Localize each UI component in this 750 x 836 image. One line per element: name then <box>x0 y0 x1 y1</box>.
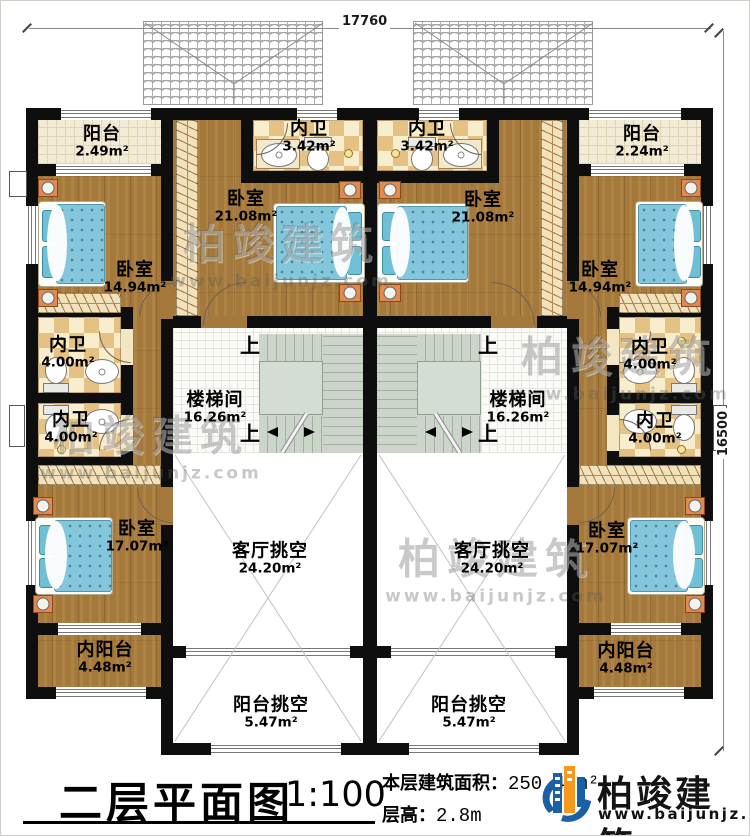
bed <box>627 517 705 595</box>
room-label-balcony-tl: 阳台2.49m² <box>75 125 128 160</box>
room-label-bath-right-2: 内卫4.00m² <box>628 412 681 447</box>
wall-inner-balcony-right-cap <box>681 623 713 635</box>
wall-inner-balcony-right-cap <box>579 623 611 635</box>
room-label-bath-tr: 内卫3.42m² <box>400 120 453 155</box>
window <box>589 108 681 120</box>
stairs-up-label: 上 <box>240 418 260 447</box>
stairs-up-label: 上 <box>478 418 498 447</box>
bed <box>38 201 106 287</box>
room-label-bedroom-left-lower: 卧室17.07m² <box>106 520 169 555</box>
wall-inner-balcony-left-cap <box>141 623 173 635</box>
stairs-left-arrow <box>267 427 278 437</box>
dimension-top-value: 17760 <box>339 14 390 29</box>
stairs-up-label: 上 <box>240 330 260 359</box>
dimension-tick <box>714 746 724 756</box>
wall-inner-balcony-left-cap <box>26 623 58 635</box>
door-opening <box>607 415 619 451</box>
stairs-right-arrow <box>462 427 473 437</box>
room-label-stair-left: 楼梯间16.26m² <box>184 391 247 426</box>
room-label-bedroom-left-upper: 卧室14.94m² <box>104 261 167 296</box>
room-label-bedroom-right-upper: 卧室14.94m² <box>569 261 632 296</box>
stairs-left-arrow <box>304 427 315 437</box>
wardrobe <box>579 465 701 485</box>
dimension-right-value: 16500 <box>716 408 731 459</box>
wardrobe <box>38 465 161 485</box>
wall-interior-left-a <box>161 108 173 755</box>
nightstand <box>685 595 705 613</box>
wall-bath-divider-right <box>607 393 713 403</box>
room-label-balcony-void-left: 阳台挑空5.47m² <box>233 696 309 731</box>
nightstand <box>33 595 53 613</box>
roof-hatch-left <box>143 21 323 105</box>
nightstand <box>339 284 361 302</box>
company-name: 柏竣建筑 <box>597 765 749 836</box>
wardrobe <box>176 120 198 316</box>
wall-niche <box>9 405 25 447</box>
room-label-bedroom-right-lower: 卧室17.07m² <box>576 522 639 557</box>
wardrobe <box>541 120 563 316</box>
roof-hatch-right <box>413 21 593 105</box>
room-label-balcony-tr: 阳台2.24m² <box>615 125 668 160</box>
bed <box>273 203 365 283</box>
stairs-right-upper-treads <box>417 334 481 361</box>
toilet-tank <box>43 383 69 393</box>
window <box>26 206 38 264</box>
bed <box>635 201 703 287</box>
roof-ridge-lines-right <box>414 22 594 106</box>
window <box>409 743 539 755</box>
bed <box>35 517 113 595</box>
room-label-bedroom-center-left: 卧室21.08m² <box>215 190 278 225</box>
window <box>594 687 684 699</box>
room-label-inner-balcony-left: 内阳台4.48m² <box>77 641 134 676</box>
window <box>56 687 146 699</box>
door-opening <box>607 329 619 365</box>
stairs-right-arrow <box>425 427 436 437</box>
toilet-tank <box>671 383 697 393</box>
stairs-up-label: 上 <box>478 330 498 359</box>
room-label-living-void-left: 客厅挑空24.20m² <box>232 542 308 577</box>
window <box>61 108 151 120</box>
door-opening <box>567 487 579 525</box>
stairs-right-landing <box>417 361 481 415</box>
nightstand <box>379 181 401 199</box>
wall-bath-divider-left <box>26 393 133 403</box>
floor-drain <box>677 337 686 346</box>
floor-height-row: 层高：2.8m <box>382 801 482 827</box>
wall-niche <box>9 171 27 197</box>
wall-bedroom-stair-right <box>377 316 567 328</box>
sheet-scale: 1:100 <box>285 775 386 815</box>
wall-interior-right-a <box>567 108 579 755</box>
room-label-bedroom-center-right: 卧室21.08m² <box>452 191 515 226</box>
window <box>211 743 341 755</box>
floor-drain <box>391 149 400 158</box>
window <box>56 164 151 176</box>
floor-height-label: 层高： <box>382 805 436 826</box>
company-logo-icon <box>537 761 593 829</box>
nightstand <box>681 289 701 307</box>
room-label-bath-left-1: 内卫4.00m² <box>41 336 94 371</box>
stairs-left-landing <box>259 361 323 415</box>
nightstand <box>339 181 361 199</box>
room-label-bath-left-2: 内卫4.00m² <box>44 411 97 446</box>
dimension-line-right <box>723 31 724 751</box>
roof-ridge-lines-left <box>144 22 324 106</box>
floor-area-label: 本层建筑面积： <box>382 773 508 794</box>
stairs-left-upper-treads <box>259 334 323 361</box>
floor-plan-sheet: 17760 16500 <box>0 0 750 836</box>
sliding-door <box>611 623 681 635</box>
room-label-bath-right-1: 内卫4.00m² <box>623 338 676 373</box>
nightstand <box>38 289 58 307</box>
room-label-bath-tl: 内卫3.42m² <box>282 120 335 155</box>
nightstand <box>38 179 58 197</box>
nightstand <box>379 284 401 302</box>
title-underline <box>23 821 375 824</box>
nightstand <box>681 179 701 197</box>
company-website: www.baijunjz.com <box>598 805 750 823</box>
window <box>591 164 684 176</box>
nightstand <box>685 497 705 515</box>
room-label-living-void-right: 客厅挑空24.20m² <box>454 542 530 577</box>
room-label-inner-balcony-right: 内阳台4.48m² <box>598 642 655 677</box>
room-label-balcony-void-right: 阳台挑空5.47m² <box>431 696 507 731</box>
floor-drain <box>57 445 66 454</box>
floor-drain <box>344 149 353 158</box>
nightstand <box>33 497 53 515</box>
wall-party-center <box>363 108 377 755</box>
floor-height-value: 2.8m <box>436 805 482 827</box>
sliding-door <box>58 623 141 635</box>
